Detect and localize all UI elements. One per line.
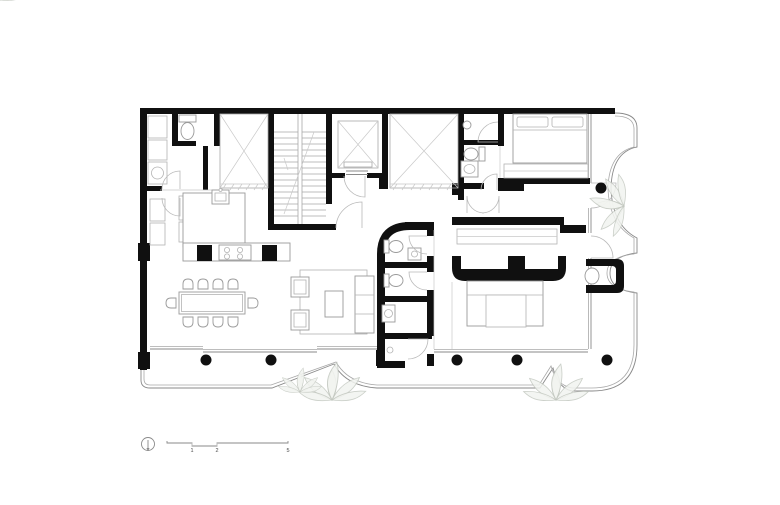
washer-icon — [382, 305, 395, 322]
living-set — [291, 270, 374, 334]
sink-icon — [408, 248, 421, 260]
sink-icon — [212, 189, 229, 205]
toilet-icon — [384, 274, 403, 287]
staircase — [274, 114, 326, 224]
bathroom-block — [376, 222, 434, 368]
column-dot — [266, 355, 277, 366]
plants — [0, 0, 627, 401]
toilet-icon — [464, 147, 485, 161]
coffee-table — [325, 291, 343, 317]
toilet-icon — [179, 115, 196, 140]
plant-icon — [0, 0, 27, 1]
column-dot — [512, 355, 523, 366]
sink-icon — [461, 161, 478, 177]
basin-icon — [585, 268, 599, 284]
shaft-void-1 — [220, 114, 268, 190]
elevator — [338, 121, 378, 175]
shaft-void-2 — [390, 114, 458, 190]
scale-bar: 1 2 5 — [167, 441, 290, 454]
column-dot — [602, 355, 613, 366]
terrace-niche — [585, 259, 624, 293]
column-dot — [452, 355, 463, 366]
bed — [467, 281, 543, 327]
bathroom-upper — [461, 121, 500, 178]
water-heater-icon — [463, 121, 471, 129]
north-arrow-icon — [142, 438, 155, 452]
scale-label-5: 5 — [286, 448, 289, 454]
column-dot — [201, 355, 212, 366]
cooktop-icon — [219, 245, 251, 260]
bedroom-upper — [504, 114, 588, 178]
column-square — [197, 245, 212, 261]
dining-set — [166, 279, 258, 327]
armchair — [291, 277, 309, 297]
floor-plan-sheet: 1 2 5 — [0, 0, 780, 505]
toilet-icon — [384, 240, 403, 253]
column-dot — [596, 183, 607, 194]
master-suite — [452, 229, 624, 349]
column-square — [262, 245, 277, 261]
sofa — [355, 276, 374, 333]
floor-plan-canvas: 1 2 5 — [0, 0, 780, 505]
bed — [513, 114, 587, 163]
shower-drain-icon — [387, 347, 393, 353]
armchair — [291, 310, 309, 330]
scale-label-2: 2 — [215, 448, 218, 454]
scale-label-1: 1 — [190, 448, 193, 454]
